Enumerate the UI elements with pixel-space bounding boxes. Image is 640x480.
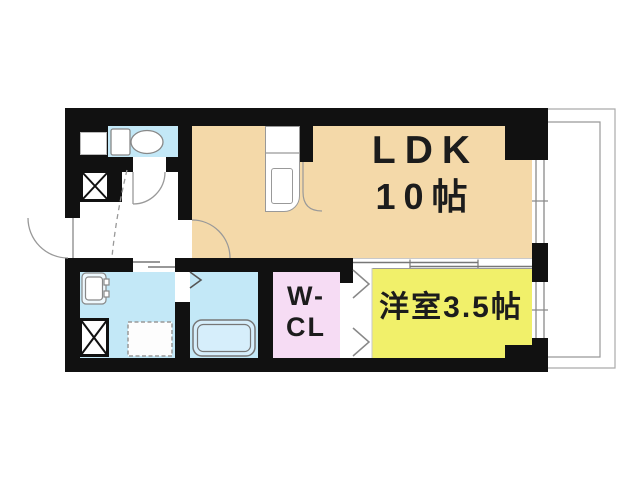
wall-closet-stub bbox=[340, 272, 353, 283]
wall-hall-stub bbox=[107, 157, 122, 202]
window-western bbox=[532, 282, 548, 338]
balcony bbox=[548, 109, 615, 368]
pipe-space-upper bbox=[82, 172, 109, 201]
wall-top bbox=[65, 108, 548, 126]
wall-kitchen-stub bbox=[298, 126, 313, 162]
wcl-label-line1: W- bbox=[272, 281, 340, 312]
wall-bottom bbox=[65, 358, 548, 372]
ldk-label-line1: LDK bbox=[338, 128, 513, 175]
room-toilet bbox=[107, 126, 178, 157]
wall-hall-bottom-right bbox=[175, 258, 353, 272]
ldk-label: LDK 10帖 bbox=[338, 128, 513, 218]
floor-plan: LDK 10帖 洋室3.5帖 W- CL bbox=[0, 0, 640, 480]
wall-left-upper bbox=[65, 108, 80, 218]
wall-corner-bottom-right bbox=[505, 345, 548, 359]
wall-hall-bottom-left bbox=[80, 258, 133, 272]
wall-washroom-bathroom bbox=[175, 302, 190, 358]
room-bathroom bbox=[190, 270, 258, 358]
western-room-label: 洋室3.5帖 bbox=[370, 290, 532, 326]
entrance-door bbox=[28, 218, 73, 258]
closet-folding-door bbox=[353, 270, 369, 356]
toilet-shelf-niche bbox=[80, 132, 107, 155]
wall-hall-ldk bbox=[178, 126, 192, 220]
walk-in-closet-label: W- CL bbox=[272, 281, 340, 343]
window-ldk bbox=[532, 160, 548, 243]
wall-right-mid bbox=[532, 243, 548, 282]
washroom-door bbox=[133, 262, 175, 267]
wall-toilet-bottom-right bbox=[166, 157, 178, 172]
toilet-door bbox=[133, 172, 165, 204]
wcl-label-line2: CL bbox=[272, 312, 340, 343]
room-washroom bbox=[80, 272, 175, 358]
ldk-label-line2: 10帖 bbox=[338, 175, 513, 218]
wall-left-lower bbox=[65, 258, 80, 372]
wall-bathroom-closet bbox=[258, 272, 273, 358]
kitchen-sink bbox=[271, 168, 293, 204]
